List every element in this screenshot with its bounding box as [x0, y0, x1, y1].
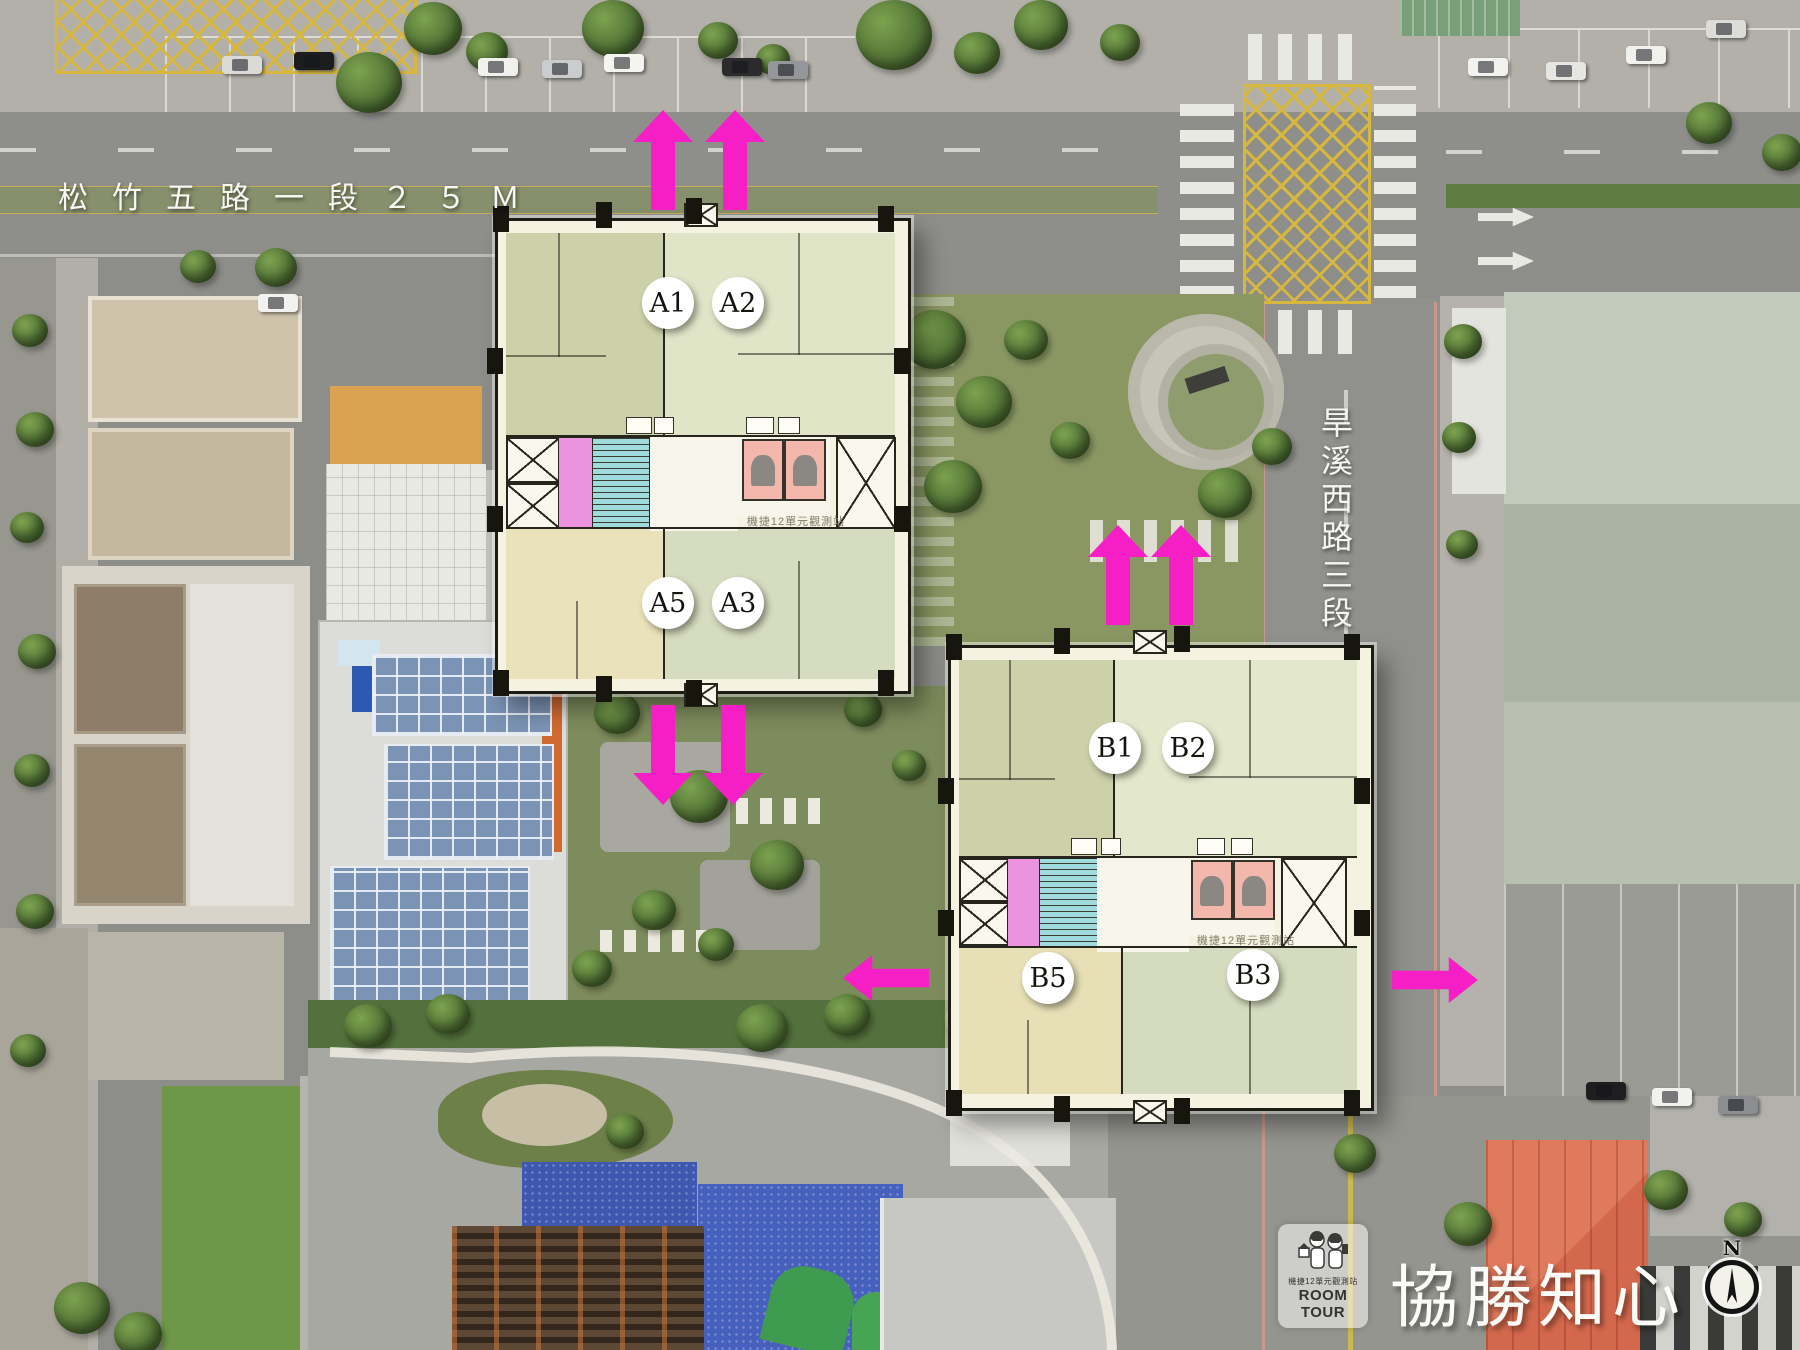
roomtour-badge: 機捷12單元觀測站 ROOM TOUR [1278, 1224, 1368, 1328]
structural-column [894, 348, 910, 374]
roomtour-mascot-icon [1291, 1230, 1355, 1272]
compass: N [1700, 1236, 1764, 1320]
structural-column [487, 348, 503, 374]
structural-column [894, 506, 910, 532]
badge-brand: ROOM TOUR [1278, 1287, 1368, 1321]
structural-column [1354, 910, 1370, 936]
structural-column [878, 206, 894, 232]
structural-column [946, 634, 962, 660]
structural-column [487, 506, 503, 532]
street-name-songzhu: 松竹五路一段２５Ｍ [58, 184, 758, 214]
structural-column [1174, 1098, 1190, 1124]
aerial-site-plan: 機捷12單元觀測站 A1 A2 A5 A3 機捷1 [0, 0, 1800, 1350]
structural-column [946, 1090, 962, 1116]
compass-needle-icon [1724, 1268, 1740, 1306]
page-title: 協勝知心 [1390, 1242, 1686, 1341]
structural-column [1174, 626, 1190, 652]
structural-column [1054, 628, 1070, 654]
structural-column [1344, 1090, 1360, 1116]
structural-column [938, 910, 954, 936]
structural-column [878, 670, 894, 696]
street-name-hanxi: 旱溪西路三段 [1312, 406, 1358, 634]
structural-column [1344, 634, 1360, 660]
compass-ring [1705, 1260, 1759, 1314]
structural-column [493, 670, 509, 696]
structural-column [596, 676, 612, 702]
badge-name: 機捷12單元觀測站 [1278, 1276, 1368, 1287]
structural-column [1354, 778, 1370, 804]
structural-column [938, 778, 954, 804]
structural-column [686, 680, 702, 706]
structural-column [1054, 1096, 1070, 1122]
compass-north-label: N [1700, 1236, 1764, 1260]
